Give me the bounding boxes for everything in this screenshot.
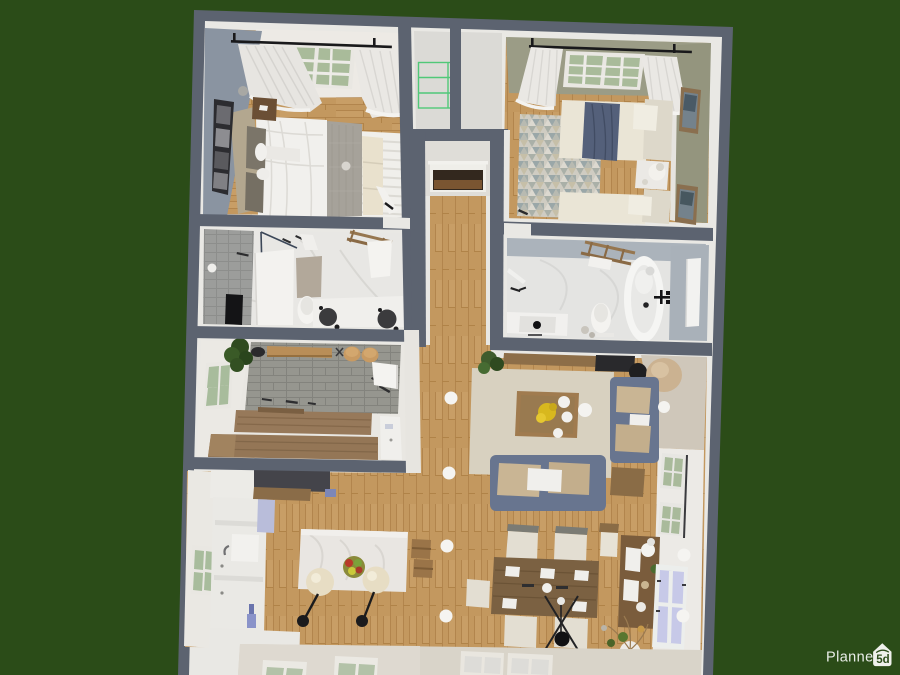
- svg-text:Planner: Planner: [826, 650, 879, 666]
- svg-text:5d: 5d: [876, 654, 889, 666]
